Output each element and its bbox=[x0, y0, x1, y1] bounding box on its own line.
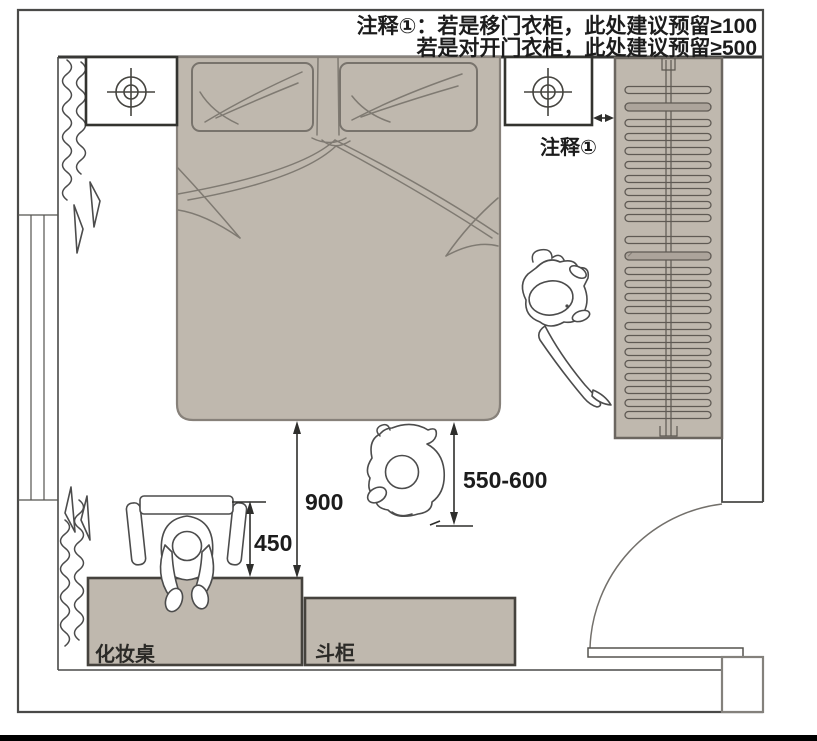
bed bbox=[177, 57, 500, 420]
person-crouching bbox=[365, 424, 444, 516]
hanger-garment-hatch bbox=[625, 103, 711, 111]
wardrobe bbox=[615, 58, 722, 438]
door-jamb-wall bbox=[722, 438, 763, 502]
wall-stub-door-right bbox=[722, 657, 763, 712]
annotation-line-2: 若是对开门衣柜，此处建议预留≥500 bbox=[415, 36, 757, 60]
person-standing bbox=[522, 250, 611, 407]
chest-label: 斗柜 bbox=[315, 642, 355, 665]
hanger-garment-hatch bbox=[625, 252, 711, 260]
curtain-squiggles-bottom bbox=[61, 487, 91, 646]
pillow-left bbox=[192, 63, 313, 131]
door-leaf bbox=[588, 648, 743, 657]
dimension-550-600: 550-600 bbox=[430, 422, 547, 526]
floor-plan-canvas: 化妆桌 斗柜 900 bbox=[0, 0, 817, 741]
vanity-label: 化妆桌 bbox=[95, 642, 156, 666]
annotation-line-1: 注释①：若是移门衣柜，此处建议预留≥100 bbox=[357, 14, 757, 38]
dimension-900: 900 bbox=[293, 421, 343, 578]
pillow-right bbox=[340, 63, 477, 131]
note-gap-arrow bbox=[593, 114, 614, 122]
bottom-rule bbox=[0, 735, 817, 741]
door-swing-arc bbox=[590, 504, 722, 648]
note-marker-label: 注释① bbox=[540, 135, 597, 159]
window-left bbox=[18, 215, 58, 500]
dim-900-label: 900 bbox=[305, 489, 343, 515]
dim-450-label: 450 bbox=[254, 530, 292, 556]
dim-550-600-label: 550-600 bbox=[463, 467, 547, 493]
bedroom-floor-plan: 化妆桌 斗柜 900 bbox=[0, 0, 817, 741]
